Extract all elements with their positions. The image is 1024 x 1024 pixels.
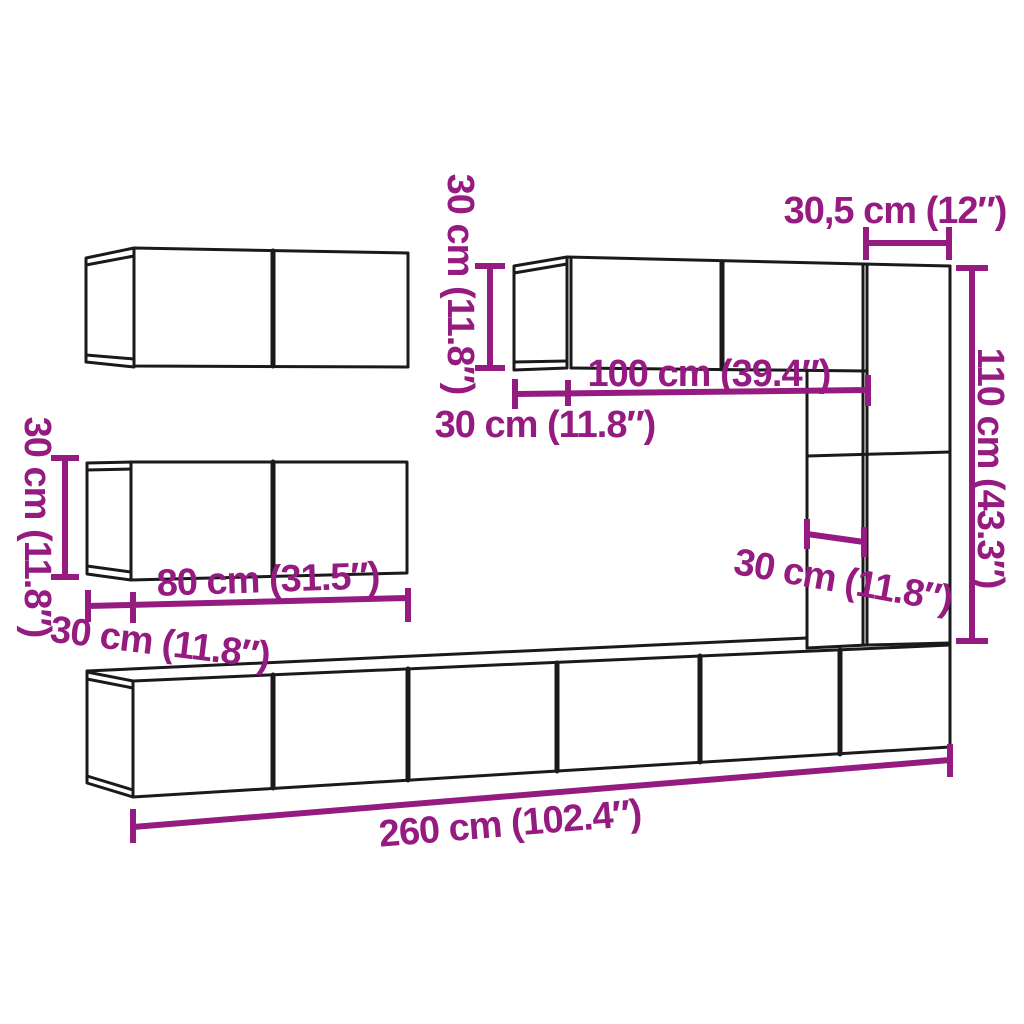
corner-column-side-bottom-edge — [807, 645, 867, 648]
corner-column-shelf-line — [807, 452, 950, 456]
cabinet-top-left-side-inner-bottom — [86, 355, 134, 359]
dim-upper-right-cabinet-height: 30 cm (11.8″) — [439, 174, 505, 395]
cabinet-top-left-side-panel — [86, 248, 134, 367]
dim-upper-right-cabinet-height-label: 30 cm (11.8″) — [439, 174, 481, 395]
dim-corner-cabinet-height: 110 cm (43.3″) — [956, 268, 1011, 641]
dim-corner-cabinet-width: 30,5 cm (12″) — [784, 190, 1007, 260]
cabinet-mid-left-side-panel — [87, 462, 131, 580]
bottom-row-side-inner-bottom — [87, 776, 133, 790]
diagram-svg: 30 cm (11.8″) 30,5 cm (12″) 100 cm (39.4… — [0, 0, 1024, 1024]
dim-corner-cabinet-depth-line — [807, 519, 864, 557]
cabinet-top-right-side-panel — [514, 257, 567, 370]
cabinet-mid-left-side-inner-top — [87, 469, 131, 470]
dim-left-cabinet-width-label: 80 cm (31.5″) — [156, 555, 380, 605]
dim-corner-cabinet-width-label: 30,5 cm (12″) — [784, 190, 1007, 232]
cabinet-top-left — [86, 248, 408, 367]
dim-corner-cabinet-depth: 30 cm (11.8″) — [731, 519, 956, 621]
dim-bottom-row-width: 260 cm (102.4″) — [133, 744, 950, 856]
dim-left-cabinet-height: 30 cm (11.8″) — [16, 417, 79, 638]
dim-upper-right-cabinet-depth-label: 30 cm (11.8″) — [435, 404, 656, 446]
dimension-diagram: 30 cm (11.8″) 30,5 cm (12″) 100 cm (39.4… — [0, 0, 1024, 1024]
dim-left-cabinet-height-label: 30 cm (11.8″) — [16, 417, 58, 638]
cabinet-mid-left-side-inner-bottom — [87, 566, 131, 572]
cabinet-top-right-side-inner-bottom — [514, 361, 567, 362]
dim-corner-cabinet-depth-label: 30 cm (11.8″) — [731, 541, 956, 621]
cabinet-top-right-top-edge — [567, 257, 950, 266]
dim-corner-cabinet-height-label: 110 cm (43.3″) — [969, 348, 1011, 589]
dim-upper-right-cabinet-width-label: 100 cm (39.4″) — [588, 353, 831, 395]
